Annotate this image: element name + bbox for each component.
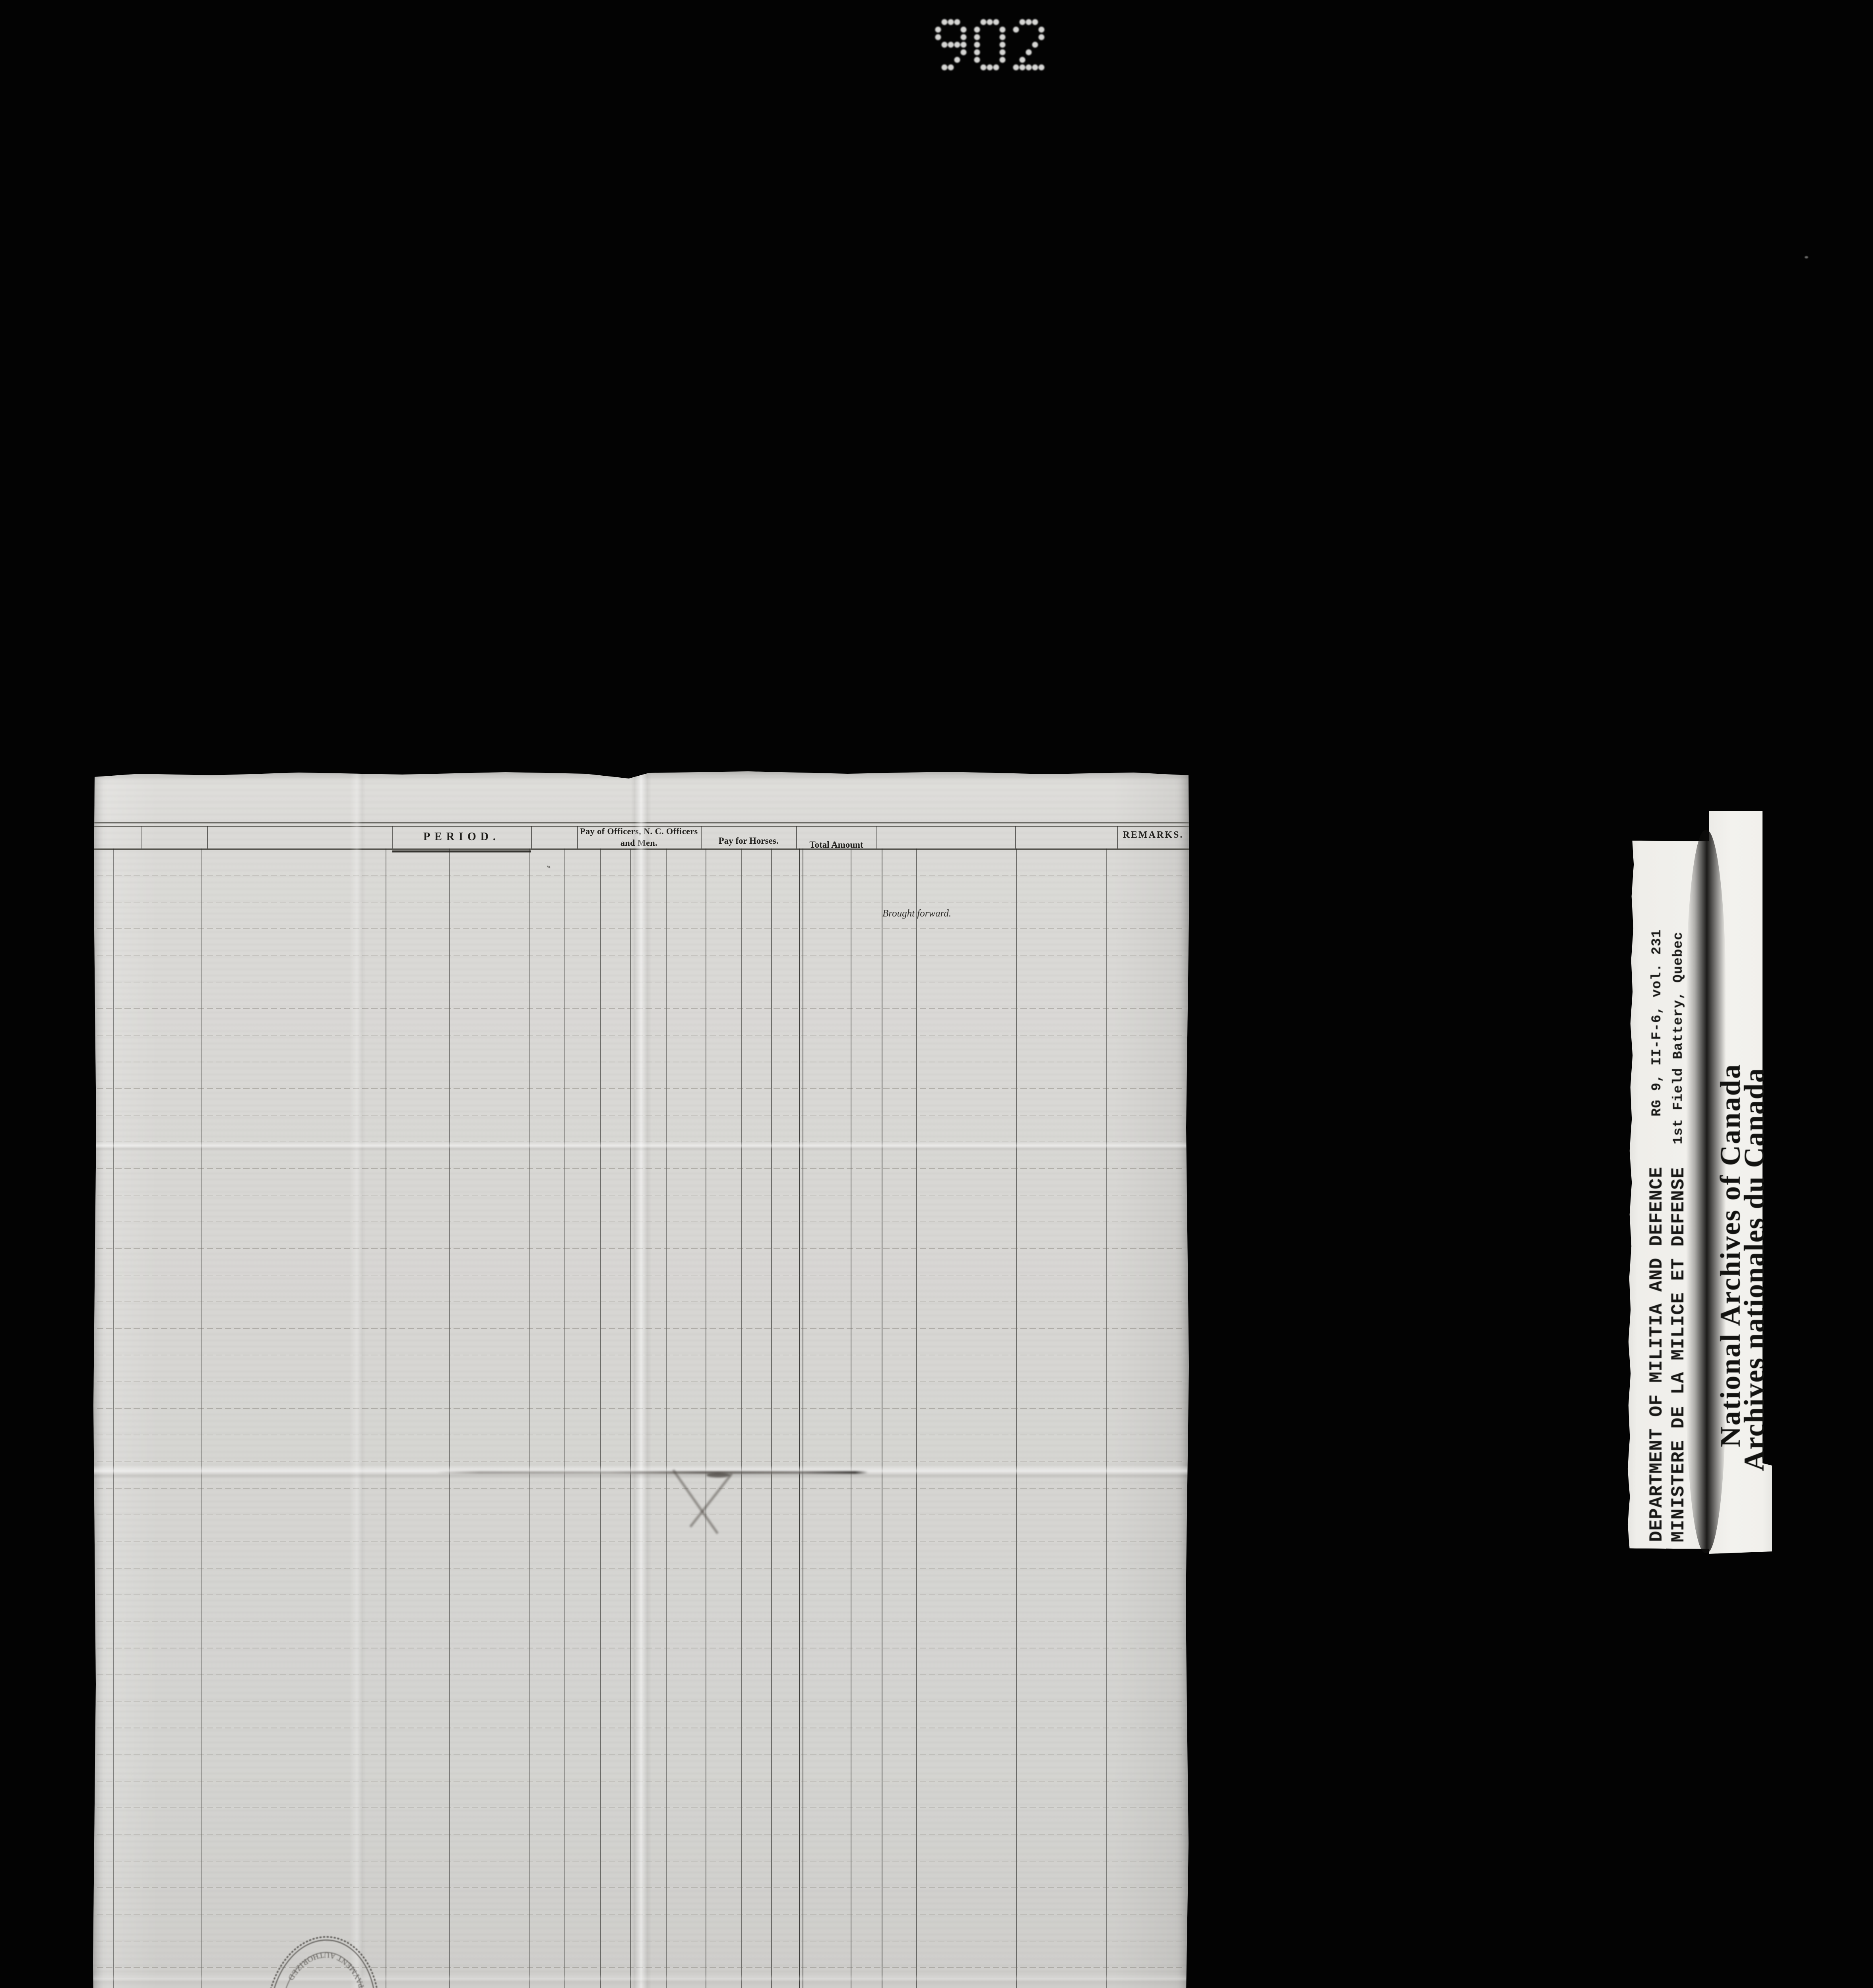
vertical-fold-crease [631,770,651,1988]
table-column-rule [529,848,530,1988]
column-header-pay-officers-line2: and Men. [577,837,701,848]
payment-authorized-stamp: MILITIA & DEFENCE PAYMENT AUTHORIZED OTT… [253,1925,392,1988]
table-row-rule [97,1435,1185,1435]
header-column-rule [1015,826,1016,848]
film-frame-number-digits [935,18,1045,71]
table-row-rule [97,1861,1185,1862]
label-reference-volume: RG 9, II-F-6, vol. 231 [1650,929,1665,1116]
table-row-rule [97,1381,1185,1382]
table-row-rule [97,1541,1185,1542]
header-column-rule [207,826,208,848]
table-column-rule [741,848,742,1988]
header-column-rule [876,826,877,848]
table-row-rule [97,1648,1185,1648]
table-column-rule [666,848,667,1988]
table-row-rule [97,1355,1185,1355]
horizontal-fold-crease-lower [92,1974,1189,1984]
table-column-rule [201,848,202,1988]
table-column-rule [449,848,450,1988]
stamp-ring-bottom-text: PAYMENT AUTHORIZED [285,1946,369,1988]
table-column-rule [882,848,882,1988]
table-row-rule [97,1914,1185,1915]
table-row-rule [97,1035,1185,1036]
header-bottom-rule [92,848,1189,850]
ditto-mark: ‶ [545,864,551,876]
label-department-english: DEPARTMENT OF MILITIA AND DEFENCE [1646,1167,1667,1542]
table-row-rule [97,1248,1185,1249]
table-row-rule [97,1008,1185,1009]
table-row-rule [97,1168,1185,1169]
table-row-rule [97,1488,1185,1489]
table-column-rule [386,848,386,1988]
table-row-rule [97,1568,1185,1569]
table-column-rule [113,848,114,1988]
label-national-archives-french: Archives nationales du Canada [1738,1068,1771,1471]
table-column-rule [803,848,803,1988]
table-row-rule [97,1195,1185,1196]
table-column-rule [1106,848,1107,1988]
column-header-pay-officers-line1: Pay of Officers, N. C. Officers [577,825,701,837]
column-header-total-amount: Total Amount [796,837,876,853]
table-row-rule [97,1807,1185,1808]
table-column-rule [1016,848,1017,1988]
table-row-rule [97,1275,1185,1276]
table-row-rule [97,1674,1185,1675]
label-reference-unit: 1st Field Battery, Quebec [1671,932,1686,1144]
column-header-pay-horses: Pay for Horses. [701,833,796,849]
table-row-rule [97,1967,1185,1968]
crease-smudge-streak [436,1471,868,1474]
table-row-rule [97,1594,1185,1595]
header-column-rule [531,826,532,848]
table-row-rule [97,1142,1185,1142]
dust-speck [1805,256,1808,258]
table-row-rule [97,1408,1185,1409]
table-column-rule [564,848,565,1988]
vertical-fold-crease-left [350,770,366,1988]
top-rule-outer [92,822,1189,823]
table-row-rule [97,1115,1185,1116]
table-column-rule [851,848,851,1988]
stamp-ring-bottom-textpath: PAYMENT AUTHORIZED [285,1946,369,1988]
table-column-rule [630,848,631,1988]
table-row-rule [97,1701,1185,1702]
table-column-rule [799,848,800,1988]
crease-smudge-diagonal [672,1469,719,1534]
microfilm-frame: PERIOD. Pay of Officers, N. C. Officers … [0,0,1873,1988]
table-row-rule [97,1941,1185,1941]
column-header-pay-officers: Pay of Officers, N. C. Officers and Men. [577,825,701,848]
table-row-rule [97,1062,1185,1062]
brought-forward-note: Brought forward. [882,908,951,919]
label-department-french: MINISTERE DE LA MILICE ET DEFENSE [1668,1167,1689,1542]
table-row-rule [97,1834,1185,1835]
table-row-rule [97,1781,1185,1782]
header-column-rule [142,826,142,848]
table-column-rule [916,848,917,1988]
table-row-rule [97,1621,1185,1622]
table-row-rule [97,928,1185,929]
table-row-rule [97,1754,1185,1755]
table-column-rule [771,848,772,1988]
ledger-sheet: PERIOD. Pay of Officers, N. C. Officers … [92,770,1189,1988]
column-header-period: PERIOD. [392,828,531,846]
table-row-rule [97,902,1185,903]
table-row-rule [97,1221,1185,1222]
table-column-rule [706,848,706,1988]
column-header-remarks: REMARKS. [1117,826,1189,844]
header-bottom-rule-dark-segment [392,850,531,852]
table-row-rule [97,1461,1185,1462]
table-column-rule [600,848,601,1988]
crease-smudge-blob [706,1473,730,1477]
table-row-rule [97,982,1185,982]
table-row-rule [97,1887,1185,1888]
stamp-outer-ring [263,1935,383,1988]
table-row-rule [97,955,1185,956]
table-row-rule [97,1514,1185,1515]
table-row-rule [97,1328,1185,1329]
table-row-rule [97,1728,1185,1728]
table-row-rule [97,1301,1185,1302]
table-row-rule [97,1088,1185,1089]
horizontal-fold-crease-upper [92,1141,1189,1151]
table-row-rule [97,875,1185,876]
film-frame-number [935,18,1054,74]
